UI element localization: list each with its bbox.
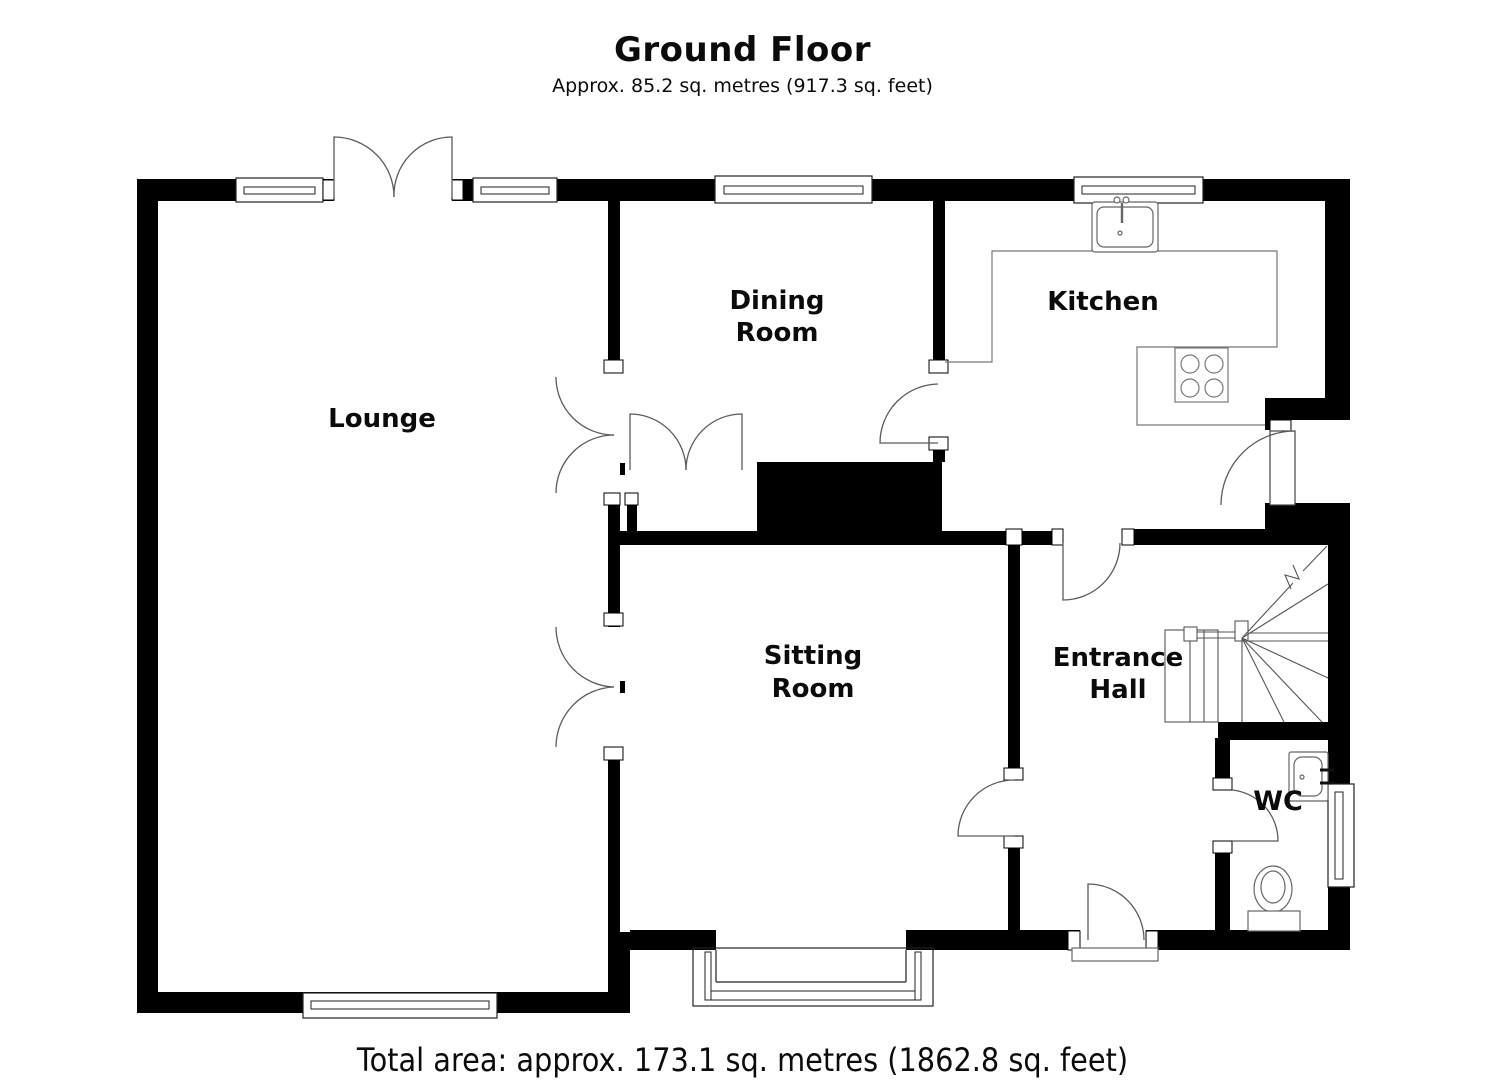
- room-label-hall-1: Entrance: [1053, 643, 1184, 673]
- wall-right-lower: [1328, 540, 1350, 950]
- kitchen-hall-door: [1063, 543, 1120, 600]
- stair-break-mark: [1285, 565, 1299, 589]
- dining-window: [715, 176, 872, 203]
- toilet-icon: [1248, 866, 1300, 931]
- wall-lounge-east: [608, 200, 620, 932]
- opening-kitchen-hall-door: [1063, 529, 1122, 545]
- opening-front-door: [1080, 930, 1146, 950]
- dining-kitchen-door: [880, 384, 938, 443]
- room-label-kitchen: Kitchen: [1047, 287, 1159, 317]
- room-label-dining-2: Room: [736, 318, 819, 348]
- wall-hall-top-west: [618, 531, 1052, 545]
- wall-stair-bottom: [1218, 722, 1328, 740]
- wall-sitting-bottom-left: [630, 930, 716, 950]
- lounge-dining-door-arc-upper: [556, 377, 614, 435]
- wall-sitting-hall-lower: [1008, 848, 1020, 940]
- total-area-text: Total area: approx. 173.1 sq. metres (18…: [74, 1041, 1411, 1079]
- front-door-threshold: [1072, 948, 1158, 961]
- chimney-breast: [757, 462, 942, 533]
- room-label-wc: WC: [1253, 786, 1303, 817]
- lounge-window-1: [236, 178, 323, 202]
- room-label-sitting-1: Sitting: [764, 641, 863, 671]
- wall-right-top: [1325, 179, 1350, 398]
- lounge-sitting-door-arc-upper: [556, 627, 614, 687]
- kitchen-exterior-door: [1221, 431, 1295, 505]
- wc-window: [1328, 784, 1354, 887]
- lounge-sitting-door-arc-lower: [556, 687, 614, 747]
- bay-window: [693, 948, 933, 1006]
- opening-sitting-door: [1008, 780, 1020, 836]
- room-label-dining-1: Dining: [729, 286, 824, 316]
- doors: [334, 137, 1295, 961]
- french-door-mid-left-leaf: [630, 414, 686, 470]
- wall-wc-west-lower: [1215, 853, 1230, 930]
- wall-wc-west-upper: [1215, 738, 1230, 778]
- wall-kitchen-door-block: [1265, 503, 1350, 540]
- lounge-dining-door-arc-lower: [556, 435, 614, 493]
- french-door-mid-right-leaf: [686, 414, 742, 470]
- hob-icon: [1175, 348, 1228, 402]
- floor-plan-page: Ground Floor Approx. 85.2 sq. metres (91…: [0, 0, 1485, 1080]
- room-label-lounge: Lounge: [328, 404, 436, 434]
- hall-sitting-door: [958, 780, 1014, 836]
- room-label-sitting-2: Room: [772, 674, 855, 704]
- room-label-hall-2: Hall: [1089, 675, 1146, 705]
- opening-dining-door: [933, 373, 945, 437]
- kitchen-sink-icon: [1092, 197, 1158, 252]
- opening-wc-door: [1215, 790, 1230, 841]
- opening-lounge-dining: [608, 373, 620, 493]
- lounge-window-2: [473, 178, 557, 202]
- wall-vestibule-stub: [627, 505, 637, 533]
- floor-plan-drawing: Lounge Dining Room Kitchen Sitting Room …: [0, 0, 1485, 1080]
- room-labels: Lounge Dining Room Kitchen Sitting Room …: [328, 286, 1303, 817]
- staircase: [1165, 546, 1328, 722]
- wall-left: [137, 179, 158, 1013]
- kitchen-window: [1074, 177, 1203, 203]
- lounge-bottom-window: [303, 993, 497, 1018]
- wall-sitting-hall-upper: [1008, 543, 1020, 768]
- wall-lounge-se-corner: [608, 932, 630, 1013]
- wall-kitchen-step: [1265, 398, 1350, 420]
- stair-newel-post-left: [1184, 627, 1197, 641]
